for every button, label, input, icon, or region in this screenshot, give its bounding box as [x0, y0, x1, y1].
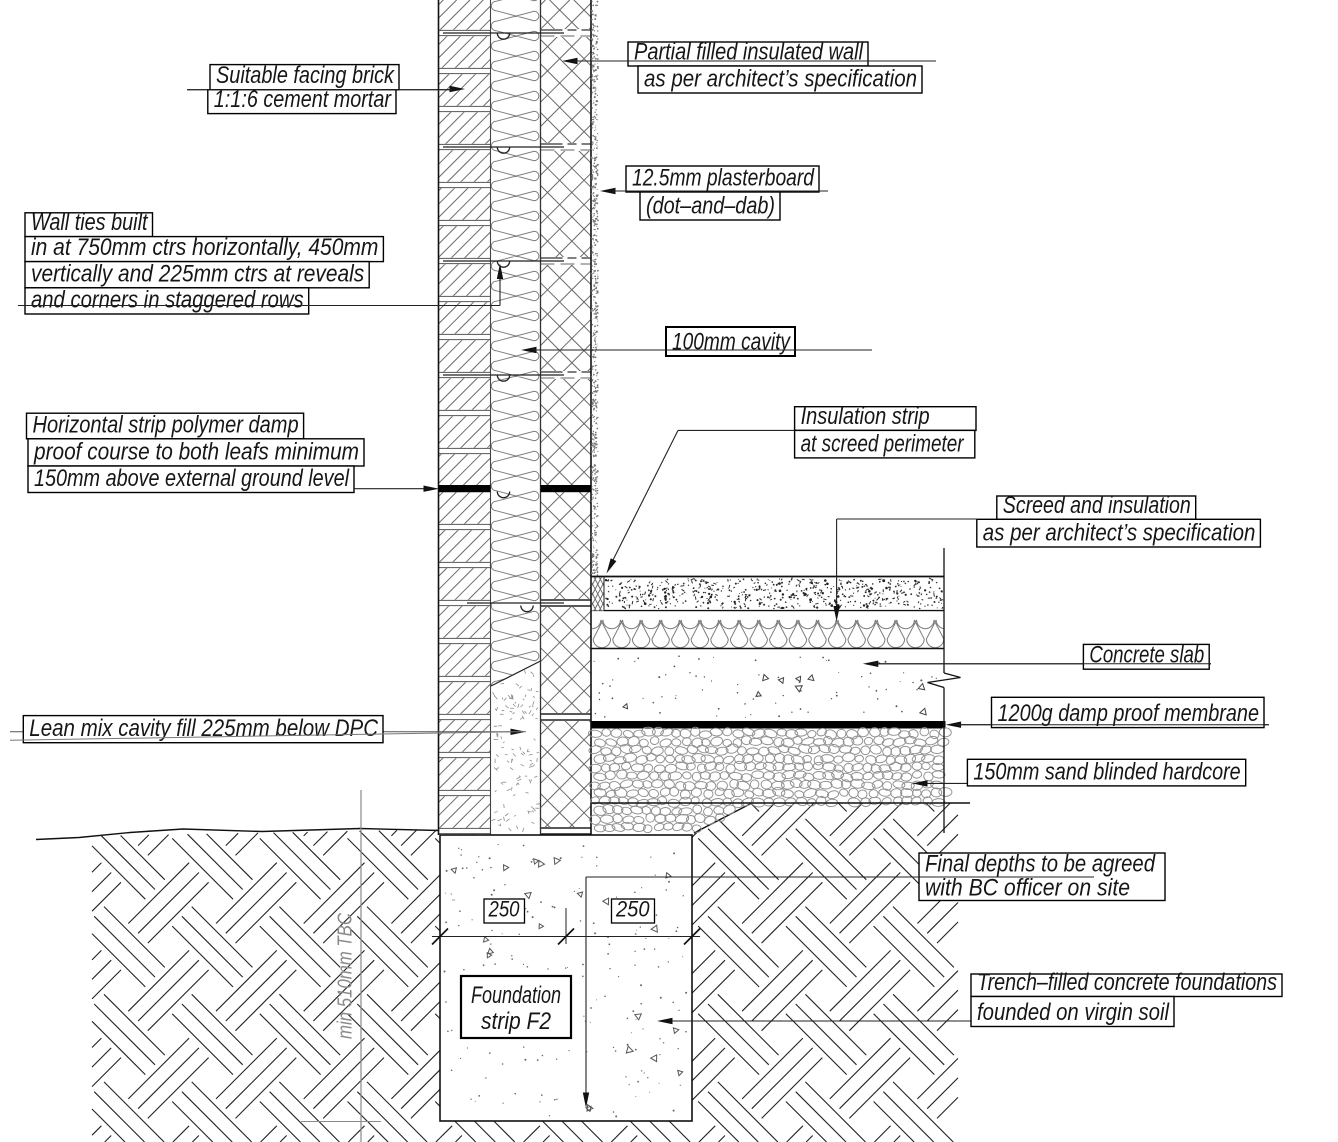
svg-text:Final depths to be agreed: Final depths to be agreed: [925, 851, 1156, 878]
svg-text:min 510mm TBC: min 510mm TBC: [334, 913, 357, 1039]
svg-text:strip F2: strip F2: [481, 1008, 551, 1035]
svg-text:proof course to both leafs min: proof course to both leafs minimum: [33, 439, 359, 466]
svg-text:Insulation strip: Insulation strip: [801, 403, 930, 430]
svg-text:Screed and insulation: Screed and insulation: [1003, 492, 1191, 519]
svg-text:Wall ties built: Wall ties built: [31, 209, 149, 236]
svg-text:12.5mm plasterboard: 12.5mm plasterboard: [632, 165, 815, 192]
svg-text:Foundation: Foundation: [471, 982, 561, 1009]
svg-text:at screed perimeter: at screed perimeter: [801, 430, 965, 457]
svg-text:founded on virgin soil: founded on virgin soil: [977, 999, 1170, 1026]
svg-text:150mm above external ground le: 150mm above external ground level: [34, 465, 350, 492]
svg-text:150mm sand blinded hardcore: 150mm sand blinded hardcore: [973, 758, 1240, 785]
svg-text:Trench–filled concrete foundat: Trench–filled concrete foundations: [977, 969, 1277, 996]
svg-text:250: 250: [488, 897, 520, 922]
svg-text:vertically and 225mm ctrs at r: vertically and 225mm ctrs at reveals: [31, 260, 364, 287]
svg-text:(dot–and–dab): (dot–and–dab): [646, 193, 775, 220]
svg-text:Lean mix cavity fill 225mm bel: Lean mix cavity fill 225mm below DPC: [29, 715, 378, 742]
svg-text:and corners in staggered rows: and corners in staggered rows: [31, 287, 304, 314]
svg-text:with BC officer on site: with BC officer on site: [925, 875, 1130, 902]
svg-text:as per architect’s specificati: as per architect’s specification: [983, 520, 1256, 547]
svg-text:as per architect’s specificati: as per architect’s specification: [644, 66, 917, 93]
svg-text:250: 250: [615, 897, 650, 922]
svg-text:Concrete slab: Concrete slab: [1089, 642, 1204, 669]
svg-text:1200g damp proof membrane: 1200g damp proof membrane: [998, 700, 1260, 727]
svg-text:Horizontal strip polymer damp: Horizontal strip polymer damp: [33, 411, 299, 438]
svg-text:100mm cavity: 100mm cavity: [672, 329, 792, 356]
svg-text:in at 750mm ctrs horizontally,: in at 750mm ctrs horizontally, 450mm: [31, 234, 378, 261]
